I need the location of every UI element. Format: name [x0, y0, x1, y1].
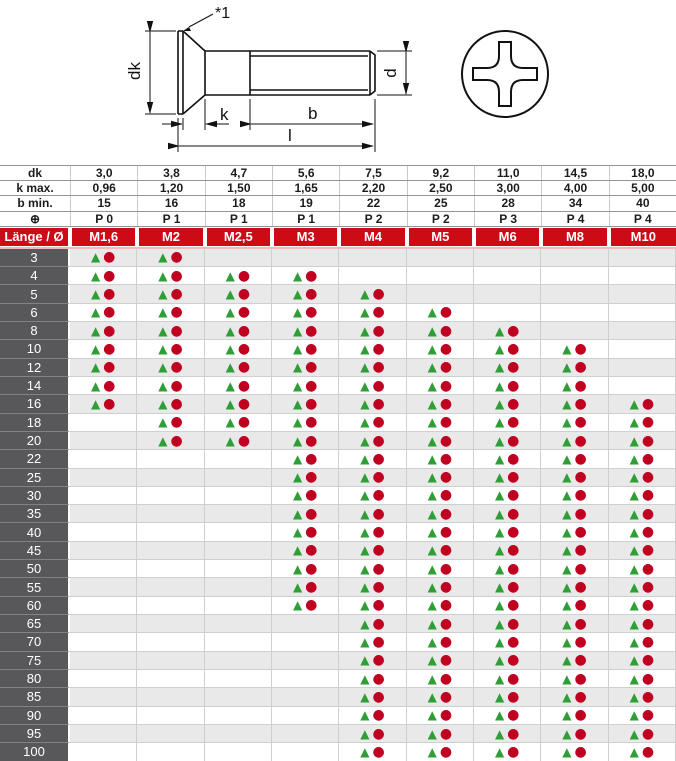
circle-marker: ● [171, 269, 183, 283]
availability-cell: ▲● [609, 707, 676, 725]
availability-cell: ▲● [272, 450, 339, 468]
circle-marker: ● [642, 745, 654, 759]
availability-cell [205, 743, 272, 761]
triangle-marker: ▲ [360, 673, 369, 685]
triangle-marker: ▲ [428, 636, 437, 648]
spec-value: P 0 [70, 212, 137, 226]
triangle-marker: ▲ [495, 673, 504, 685]
availability-cell [137, 597, 204, 615]
circle-marker: ● [373, 488, 385, 502]
availability-cell [70, 432, 137, 450]
availability-cell: ▲● [137, 432, 204, 450]
circle-marker: ● [373, 379, 385, 393]
circle-marker: ● [238, 397, 250, 411]
spec-value: 40 [609, 196, 676, 210]
circle-marker: ● [103, 379, 115, 393]
table-row: 55▲●▲●▲●▲●▲●▲● [0, 578, 676, 596]
size-header-row: Länge / ØM1,6M2M2,5M3M4M5M6M8M10 [0, 228, 676, 246]
availability-cell: ▲● [272, 578, 339, 596]
circle-marker: ● [575, 397, 587, 411]
availability-cell: ▲● [339, 578, 406, 596]
triangle-marker: ▲ [91, 270, 100, 282]
triangle-marker: ▲ [495, 361, 504, 373]
circle-marker: ● [507, 562, 519, 576]
availability-cell [609, 249, 676, 267]
spec-value: 18,0 [609, 166, 676, 180]
circle-marker: ● [507, 525, 519, 539]
length-cell: 3 [0, 249, 70, 267]
availability-cell [70, 469, 137, 487]
dimension-lines [145, 14, 412, 152]
triangle-marker: ▲ [428, 563, 437, 575]
availability-cell: ▲● [407, 414, 474, 432]
availability-cell: ▲● [205, 432, 272, 450]
availability-cell: ▲● [541, 542, 608, 560]
circle-marker: ● [642, 598, 654, 612]
availability-cell [70, 487, 137, 505]
circle-marker: ● [575, 635, 587, 649]
triangle-marker: ▲ [360, 508, 369, 520]
triangle-marker: ▲ [630, 636, 639, 648]
triangle-marker: ▲ [226, 325, 235, 337]
circle-marker: ● [440, 745, 452, 759]
availability-cell [137, 670, 204, 688]
circle-marker: ● [305, 598, 317, 612]
availability-cell [70, 597, 137, 615]
availability-cell: ▲● [272, 505, 339, 523]
availability-cell: ▲● [339, 542, 406, 560]
size-column-header: M2 [139, 228, 202, 246]
triangle-marker: ▲ [293, 581, 302, 593]
triangle-marker: ▲ [293, 453, 302, 465]
availability-cell: ▲● [474, 615, 541, 633]
availability-cell [205, 597, 272, 615]
triangle-marker: ▲ [428, 508, 437, 520]
availability-cell: ▲● [407, 743, 474, 761]
triangle-marker: ▲ [562, 361, 571, 373]
availability-cell: ▲● [474, 432, 541, 450]
spec-value: 2,50 [407, 181, 474, 195]
availability-cell: ▲● [272, 359, 339, 377]
spec-value: 15 [70, 196, 137, 210]
triangle-marker: ▲ [562, 563, 571, 575]
availability-cell [272, 249, 339, 267]
availability-cell [137, 743, 204, 761]
availability-cell [541, 249, 608, 267]
availability-cell: ▲● [407, 597, 474, 615]
triangle-marker: ▲ [428, 361, 437, 373]
triangle-marker: ▲ [630, 673, 639, 685]
spec-value: 16 [137, 196, 204, 210]
availability-table: 3▲●▲●4▲●▲●▲●▲●5▲●▲●▲●▲●▲●6▲●▲●▲●▲●▲●▲●8▲… [0, 249, 676, 761]
triangle-marker: ▲ [495, 526, 504, 538]
triangle-marker: ▲ [630, 746, 639, 758]
availability-cell: ▲● [609, 487, 676, 505]
triangle-marker: ▲ [293, 508, 302, 520]
triangle-marker: ▲ [630, 691, 639, 703]
spec-value: 3,0 [70, 166, 137, 180]
availability-cell [70, 652, 137, 670]
availability-cell [137, 505, 204, 523]
triangle-marker: ▲ [562, 581, 571, 593]
circle-marker: ● [507, 324, 519, 338]
triangle-marker: ▲ [293, 489, 302, 501]
availability-cell: ▲● [339, 304, 406, 322]
triangle-marker: ▲ [293, 435, 302, 447]
circle-marker: ● [238, 379, 250, 393]
availability-cell [137, 615, 204, 633]
spec-value: 34 [541, 196, 608, 210]
availability-cell: ▲● [541, 377, 608, 395]
availability-cell: ▲● [339, 469, 406, 487]
circle-marker: ● [440, 653, 452, 667]
triangle-marker: ▲ [630, 453, 639, 465]
circle-marker: ● [575, 653, 587, 667]
spec-value: 7,5 [339, 166, 406, 180]
availability-cell: ▲● [272, 414, 339, 432]
triangle-marker: ▲ [360, 471, 369, 483]
table-row: 16▲●▲●▲●▲●▲●▲●▲●▲●▲● [0, 395, 676, 413]
spec-value: 1,20 [137, 181, 204, 195]
availability-cell: ▲● [339, 340, 406, 358]
availability-cell: ▲● [407, 725, 474, 743]
availability-cell: ▲● [70, 304, 137, 322]
triangle-marker: ▲ [226, 416, 235, 428]
triangle-marker: ▲ [158, 398, 167, 410]
spec-value: 25 [407, 196, 474, 210]
circle-marker: ● [440, 562, 452, 576]
circle-marker: ● [575, 415, 587, 429]
availability-cell [137, 707, 204, 725]
availability-cell: ▲● [407, 359, 474, 377]
circle-marker: ● [171, 360, 183, 374]
spec-row-label: k max. [0, 181, 70, 195]
availability-cell [272, 652, 339, 670]
circle-marker: ● [171, 250, 183, 264]
circle-marker: ● [171, 379, 183, 393]
availability-cell: ▲● [609, 542, 676, 560]
triangle-marker: ▲ [360, 544, 369, 556]
availability-cell: ▲● [272, 523, 339, 541]
length-cell: 35 [0, 505, 70, 523]
spec-value: 28 [474, 196, 541, 210]
circle-marker: ● [440, 598, 452, 612]
circle-marker: ● [238, 269, 250, 283]
table-row: 50▲●▲●▲●▲●▲●▲● [0, 560, 676, 578]
table-row: 40▲●▲●▲●▲●▲●▲● [0, 523, 676, 541]
triangle-marker: ▲ [428, 306, 437, 318]
triangle-marker: ▲ [91, 251, 100, 263]
availability-cell: ▲● [407, 633, 474, 651]
availability-cell: ▲● [407, 523, 474, 541]
triangle-marker: ▲ [495, 435, 504, 447]
triangle-marker: ▲ [428, 728, 437, 740]
circle-marker: ● [103, 250, 115, 264]
circle-marker: ● [642, 635, 654, 649]
triangle-marker: ▲ [91, 380, 100, 392]
availability-cell: ▲● [407, 304, 474, 322]
size-column-header: M1,6 [72, 228, 135, 246]
triangle-marker: ▲ [91, 398, 100, 410]
circle-marker: ● [642, 470, 654, 484]
circle-marker: ● [507, 507, 519, 521]
availability-cell [205, 633, 272, 651]
availability-cell: ▲● [339, 450, 406, 468]
circle-marker: ● [575, 672, 587, 686]
triangle-marker: ▲ [630, 581, 639, 593]
availability-cell: ▲● [474, 505, 541, 523]
availability-cell: ▲● [339, 652, 406, 670]
triangle-marker: ▲ [562, 435, 571, 447]
availability-cell: ▲● [541, 670, 608, 688]
availability-cell [272, 633, 339, 651]
triangle-marker: ▲ [495, 728, 504, 740]
availability-cell: ▲● [541, 652, 608, 670]
length-cell: 50 [0, 560, 70, 578]
availability-cell: ▲● [272, 267, 339, 285]
triangle-marker: ▲ [630, 471, 639, 483]
availability-cell [137, 469, 204, 487]
dk-label: dk [125, 62, 144, 80]
triangle-marker: ▲ [428, 489, 437, 501]
circle-marker: ● [575, 507, 587, 521]
triangle-marker: ▲ [562, 416, 571, 428]
availability-cell: ▲● [137, 359, 204, 377]
circle-marker: ● [305, 580, 317, 594]
length-cell: 40 [0, 523, 70, 541]
table-row: 35▲●▲●▲●▲●▲●▲● [0, 505, 676, 523]
size-column-header: M3 [274, 228, 337, 246]
availability-cell: ▲● [70, 359, 137, 377]
circle-marker: ● [440, 507, 452, 521]
circle-marker: ● [575, 562, 587, 576]
circle-marker: ● [507, 727, 519, 741]
triangle-marker: ▲ [495, 380, 504, 392]
length-cell: 65 [0, 615, 70, 633]
circle-marker: ● [238, 342, 250, 356]
triangle-marker: ▲ [562, 599, 571, 611]
length-diameter-corner-label: Länge / Ø [0, 228, 68, 246]
technical-drawing: *1 dk d k b l [0, 0, 676, 165]
availability-cell: ▲● [137, 377, 204, 395]
availability-cell [474, 285, 541, 303]
circle-marker: ● [305, 434, 317, 448]
circle-marker: ● [575, 617, 587, 631]
triangle-marker: ▲ [562, 343, 571, 355]
length-cell: 95 [0, 725, 70, 743]
triangle-marker: ▲ [226, 398, 235, 410]
table-row: 8▲●▲●▲●▲●▲●▲●▲● [0, 322, 676, 340]
circle-marker: ● [440, 525, 452, 539]
triangle-marker: ▲ [360, 618, 369, 630]
spec-value: 19 [272, 196, 339, 210]
circle-marker: ● [373, 397, 385, 411]
availability-cell: ▲● [407, 542, 474, 560]
circle-marker: ● [642, 507, 654, 521]
availability-cell [70, 670, 137, 688]
availability-cell [205, 670, 272, 688]
availability-cell [205, 249, 272, 267]
triangle-marker: ▲ [428, 544, 437, 556]
availability-cell [609, 377, 676, 395]
size-column-header: M6 [476, 228, 539, 246]
circle-marker: ● [575, 342, 587, 356]
availability-cell [70, 450, 137, 468]
triangle-marker: ▲ [360, 636, 369, 648]
triangle-marker: ▲ [226, 361, 235, 373]
availability-cell: ▲● [541, 597, 608, 615]
circle-marker: ● [373, 672, 385, 686]
triangle-marker: ▲ [495, 709, 504, 721]
circle-marker: ● [373, 598, 385, 612]
availability-cell: ▲● [70, 249, 137, 267]
availability-cell [205, 707, 272, 725]
phillips-drive-icon: ⊕ [0, 212, 70, 226]
availability-cell: ▲● [339, 377, 406, 395]
table-row: 70▲●▲●▲●▲●▲● [0, 633, 676, 651]
availability-cell: ▲● [339, 670, 406, 688]
availability-cell [137, 450, 204, 468]
circle-marker: ● [305, 305, 317, 319]
triangle-marker: ▲ [562, 709, 571, 721]
availability-cell [272, 615, 339, 633]
availability-cell: ▲● [339, 523, 406, 541]
availability-cell: ▲● [474, 450, 541, 468]
length-cell: 85 [0, 688, 70, 706]
triangle-marker: ▲ [293, 471, 302, 483]
circle-marker: ● [440, 617, 452, 631]
availability-cell: ▲● [541, 523, 608, 541]
availability-cell: ▲● [407, 377, 474, 395]
triangle-marker: ▲ [360, 435, 369, 447]
triangle-marker: ▲ [495, 654, 504, 666]
availability-cell [205, 450, 272, 468]
availability-cell: ▲● [272, 285, 339, 303]
circle-marker: ● [507, 617, 519, 631]
length-cell: 80 [0, 670, 70, 688]
availability-cell [205, 560, 272, 578]
circle-marker: ● [575, 690, 587, 704]
circle-marker: ● [440, 543, 452, 557]
availability-cell [70, 560, 137, 578]
triangle-marker: ▲ [562, 618, 571, 630]
triangle-marker: ▲ [630, 618, 639, 630]
availability-cell [541, 267, 608, 285]
triangle-marker: ▲ [158, 288, 167, 300]
spec-value: 4,7 [205, 166, 272, 180]
availability-cell: ▲● [272, 542, 339, 560]
triangle-marker: ▲ [428, 691, 437, 703]
triangle-marker: ▲ [495, 508, 504, 520]
triangle-marker: ▲ [562, 691, 571, 703]
availability-cell: ▲● [137, 395, 204, 413]
availability-cell: ▲● [272, 432, 339, 450]
circle-marker: ● [507, 653, 519, 667]
availability-cell [272, 743, 339, 761]
triangle-marker: ▲ [428, 435, 437, 447]
table-row: 95▲●▲●▲●▲●▲● [0, 725, 676, 743]
availability-cell: ▲● [339, 359, 406, 377]
spec-value: 4,00 [541, 181, 608, 195]
circle-marker: ● [642, 488, 654, 502]
circle-marker: ● [103, 397, 115, 411]
availability-cell: ▲● [609, 597, 676, 615]
phillips-recess-icon [473, 42, 537, 106]
availability-cell: ▲● [339, 414, 406, 432]
circle-marker: ● [575, 598, 587, 612]
availability-cell: ▲● [541, 487, 608, 505]
availability-cell: ▲● [70, 322, 137, 340]
availability-cell: ▲● [474, 578, 541, 596]
circle-marker: ● [642, 415, 654, 429]
circle-marker: ● [373, 745, 385, 759]
circle-marker: ● [440, 415, 452, 429]
circle-marker: ● [373, 305, 385, 319]
availability-cell: ▲● [272, 560, 339, 578]
length-cell: 75 [0, 652, 70, 670]
circle-marker: ● [575, 543, 587, 557]
phillips-front-view [462, 31, 548, 117]
triangle-marker: ▲ [226, 270, 235, 282]
circle-marker: ● [642, 690, 654, 704]
availability-cell: ▲● [474, 560, 541, 578]
availability-cell: ▲● [339, 633, 406, 651]
availability-cell [205, 615, 272, 633]
table-row: 22▲●▲●▲●▲●▲●▲● [0, 450, 676, 468]
availability-cell [272, 707, 339, 725]
triangle-marker: ▲ [226, 343, 235, 355]
circle-marker: ● [103, 287, 115, 301]
circle-marker: ● [171, 397, 183, 411]
circle-marker: ● [507, 415, 519, 429]
spec-row: k max.0,961,201,501,652,202,503,004,005,… [0, 181, 676, 196]
availability-cell [609, 267, 676, 285]
triangle-marker: ▲ [630, 435, 639, 447]
circle-marker: ● [440, 452, 452, 466]
availability-cell: ▲● [137, 249, 204, 267]
triangle-marker: ▲ [562, 746, 571, 758]
availability-cell: ▲● [474, 359, 541, 377]
availability-cell: ▲● [474, 597, 541, 615]
triangle-marker: ▲ [360, 416, 369, 428]
availability-cell [70, 414, 137, 432]
triangle-marker: ▲ [428, 581, 437, 593]
triangle-marker: ▲ [293, 544, 302, 556]
triangle-marker: ▲ [293, 526, 302, 538]
triangle-marker: ▲ [428, 618, 437, 630]
availability-cell [137, 487, 204, 505]
circle-marker: ● [305, 324, 317, 338]
spec-row-label: b min. [0, 196, 70, 210]
triangle-marker: ▲ [428, 654, 437, 666]
triangle-marker: ▲ [495, 691, 504, 703]
circle-marker: ● [507, 379, 519, 393]
length-cell: 70 [0, 633, 70, 651]
triangle-marker: ▲ [495, 746, 504, 758]
availability-cell: ▲● [272, 487, 339, 505]
availability-cell: ▲● [407, 450, 474, 468]
circle-marker: ● [507, 598, 519, 612]
circle-marker: ● [575, 580, 587, 594]
spec-value: 9,2 [407, 166, 474, 180]
availability-cell: ▲● [407, 670, 474, 688]
circle-marker: ● [507, 488, 519, 502]
triangle-marker: ▲ [495, 489, 504, 501]
circle-marker: ● [171, 305, 183, 319]
spec-row: ⊕P 0P 1P 1P 1P 2P 2P 3P 4P 4 [0, 212, 676, 227]
table-row: 18▲●▲●▲●▲●▲●▲●▲●▲● [0, 414, 676, 432]
triangle-marker: ▲ [360, 306, 369, 318]
